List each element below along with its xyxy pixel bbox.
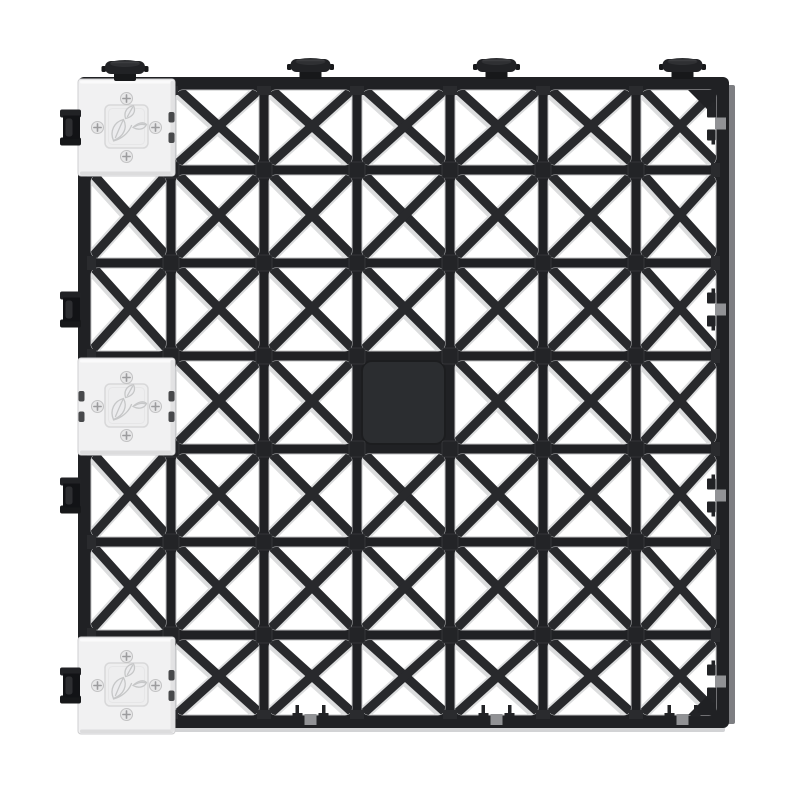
wall-node	[442, 627, 458, 643]
wall-node	[349, 441, 365, 457]
wall-node	[349, 534, 365, 550]
wall-node	[349, 348, 365, 364]
connector-slot	[79, 412, 85, 423]
connector-slot	[169, 412, 175, 423]
edge-bump	[536, 710, 550, 719]
wall-node	[628, 162, 644, 178]
edge-bump	[87, 535, 96, 549]
connector-slot	[169, 391, 175, 402]
phillips-screw-icon	[121, 151, 133, 163]
phillips-screw-icon	[150, 401, 162, 413]
edge-bump	[629, 710, 643, 719]
wall-node	[535, 255, 551, 271]
edge-bump	[536, 86, 550, 95]
left-clip	[60, 668, 81, 704]
connector-tile	[78, 637, 175, 734]
edge-bump	[711, 349, 720, 363]
grid-tile-render	[0, 0, 800, 800]
edge-bump	[711, 535, 720, 549]
wall-node	[442, 162, 458, 178]
wall-node	[256, 627, 272, 643]
wall-node	[256, 441, 272, 457]
connector-tile	[78, 79, 175, 176]
wall-node	[349, 255, 365, 271]
wall-node	[442, 348, 458, 364]
left-clip	[60, 292, 81, 328]
edge-bump	[257, 710, 271, 719]
top-knob	[659, 58, 706, 79]
phillips-screw-icon	[92, 401, 104, 413]
phillips-screw-icon	[92, 680, 104, 692]
edge-bump	[711, 256, 720, 270]
edge-bump	[443, 86, 457, 95]
wall-node	[535, 534, 551, 550]
phillips-screw-icon	[121, 372, 133, 384]
edge-bump	[257, 86, 271, 95]
phillips-screw-icon	[121, 93, 133, 105]
wall-node	[256, 162, 272, 178]
wall-node	[628, 255, 644, 271]
wall-node	[349, 627, 365, 643]
product-photo	[0, 0, 800, 800]
edge-bump	[711, 628, 720, 642]
wall-node	[442, 534, 458, 550]
top-knob	[287, 58, 334, 79]
solid-center-panel	[362, 361, 445, 444]
phillips-screw-icon	[121, 709, 133, 721]
wall-node	[442, 255, 458, 271]
connector-slot	[169, 670, 175, 681]
phillips-screw-icon	[150, 680, 162, 692]
wall-node	[256, 534, 272, 550]
wall-node	[628, 348, 644, 364]
wall-node	[628, 441, 644, 457]
connector-slot	[169, 112, 175, 123]
connector-slot	[169, 133, 175, 144]
phillips-screw-icon	[121, 651, 133, 663]
left-clip	[60, 478, 81, 514]
edge-bump	[87, 256, 96, 270]
wall-node	[628, 534, 644, 550]
wall-node	[628, 627, 644, 643]
phillips-screw-icon	[150, 122, 162, 134]
wall-node	[535, 441, 551, 457]
wall-node	[349, 162, 365, 178]
connector-tile	[78, 358, 175, 455]
wall-node	[535, 348, 551, 364]
wall-node	[535, 162, 551, 178]
wall-node	[256, 348, 272, 364]
wall-node	[535, 627, 551, 643]
left-clip	[60, 110, 81, 146]
edge-bump	[711, 442, 720, 456]
wall-node	[163, 534, 179, 550]
wall-node	[442, 441, 458, 457]
wall-node	[163, 255, 179, 271]
edge-bump	[350, 86, 364, 95]
edge-bump	[711, 163, 720, 177]
edge-bump	[629, 86, 643, 95]
phillips-screw-icon	[121, 430, 133, 442]
phillips-screw-icon	[92, 122, 104, 134]
connector-slot	[169, 691, 175, 702]
connector-slot	[79, 391, 85, 402]
top-knob	[473, 58, 520, 79]
edge-bump	[350, 710, 364, 719]
wall-node	[256, 255, 272, 271]
edge-bump	[443, 710, 457, 719]
